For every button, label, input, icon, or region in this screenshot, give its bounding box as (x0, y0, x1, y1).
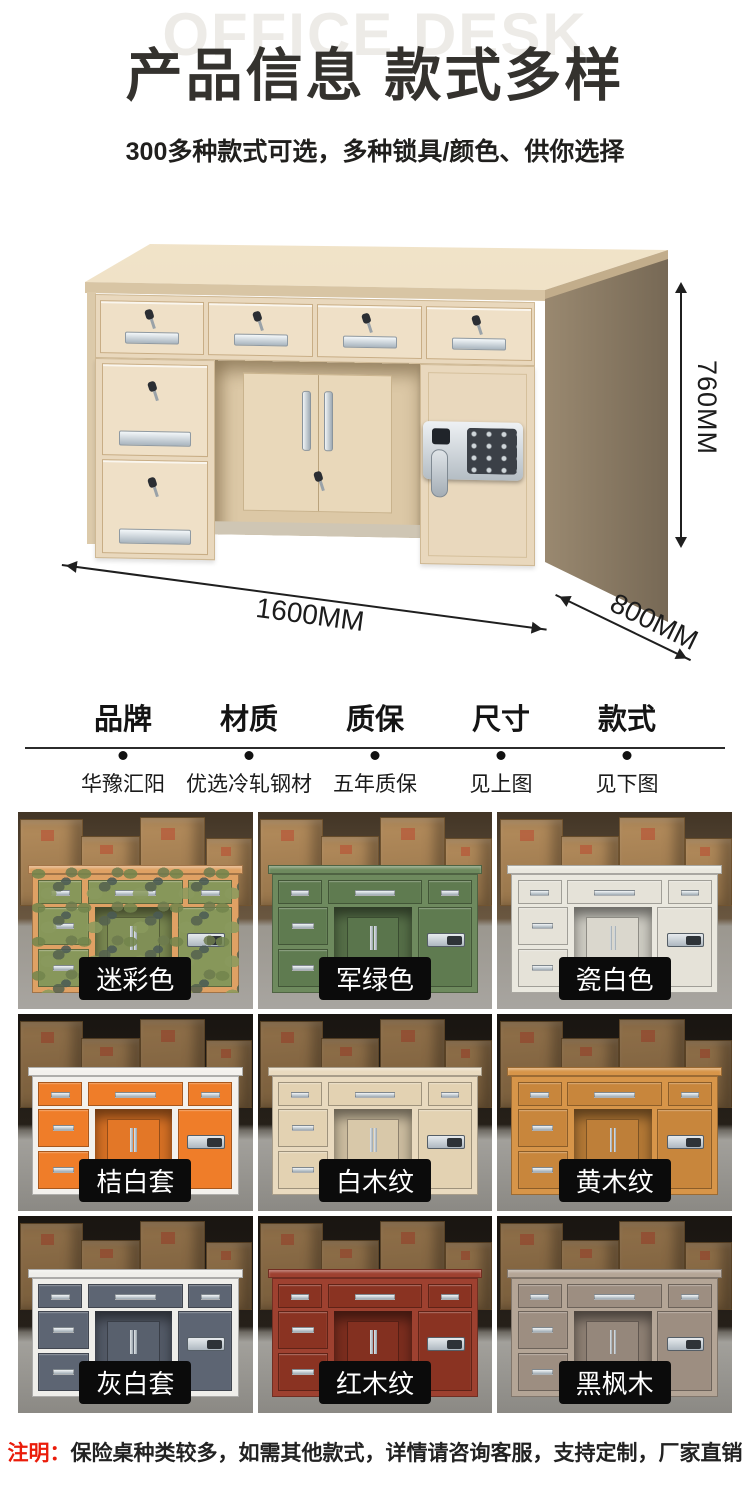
variant-label: 黑枫木 (559, 1361, 671, 1404)
spec-dot (623, 751, 632, 760)
key-icon (360, 312, 377, 335)
header-section: OFFICE DESK 产品信息 款式多样 300多种款式可选，多种锁具/颜色、… (0, 0, 750, 190)
variant-card-yellow-woodgrain: 黄木纹 (497, 1014, 732, 1211)
drawer-handle (119, 528, 191, 544)
desk-drawer (102, 459, 208, 555)
dimension-width-label: 1600MM (224, 588, 397, 642)
key-icon (146, 476, 163, 499)
desk-top-drawer-band (95, 294, 535, 366)
drawer-handle (125, 332, 179, 345)
variant-label: 灰白套 (79, 1361, 191, 1404)
key-icon (470, 314, 487, 337)
variant-label: 迷彩色 (79, 957, 191, 1000)
variant-card-porcelain-white: 瓷白色 (497, 812, 732, 1009)
spec-dot (371, 751, 380, 760)
spec-dot (119, 751, 128, 760)
desk-left-pedestal (95, 358, 215, 560)
desk-drawer (208, 302, 313, 357)
variant-label: 桔白套 (79, 1159, 191, 1202)
variant-label: 瓷白色 (559, 957, 671, 1000)
spec-dot (497, 751, 506, 760)
lock-lever-handle (431, 449, 448, 497)
variant-card-orange-white: 桔白套 (18, 1014, 253, 1211)
combo-lock-icon (187, 1135, 225, 1149)
spec-dot (245, 751, 254, 760)
variant-card-white-woodgrain: 白木纹 (258, 1014, 493, 1211)
page-subtitle: 300多种款式可选，多种锁具/颜色、供你选择 (0, 132, 750, 168)
combo-lock-icon (427, 933, 465, 947)
desk-knee-space (215, 360, 420, 538)
combo-lock-icon (667, 1337, 705, 1351)
combo-lock-icon (427, 1135, 465, 1149)
variant-label: 军绿色 (319, 957, 431, 1000)
hero-product-image: 1600MM 800MM 760MM (0, 190, 750, 690)
combo-lock-icon (187, 933, 225, 947)
variant-label: 黄木纹 (559, 1159, 671, 1202)
dimension-height-arrow (680, 286, 682, 544)
fingerprint-sensor-icon (432, 428, 450, 444)
variant-card-army-green: 军绿色 (258, 812, 493, 1009)
variant-card-camouflage: 迷彩色 (18, 812, 253, 1009)
page-title: 产品信息 款式多样 (0, 30, 750, 112)
door-handle (324, 391, 333, 451)
dimension-height-label: 760MM (691, 360, 722, 455)
desk-cabinet-doors (243, 373, 392, 514)
key-icon (146, 380, 163, 403)
combo-lock-icon (667, 933, 705, 947)
drawer-handle (119, 430, 191, 446)
desk-right-pedestal (420, 364, 535, 566)
desk-drawer (426, 306, 532, 361)
combo-lock-icon (667, 1135, 705, 1149)
desk-front (95, 294, 535, 568)
drawer-handle (343, 336, 397, 349)
desk-drawer (100, 300, 204, 355)
variant-card-black-maple: 黑枫木 (497, 1216, 732, 1413)
combo-lock-icon (427, 1337, 465, 1351)
spec-strip: 品牌 华豫汇阳 材质 优选冷轧钢材 质保 五年质保 尺寸 见上图 款式 见下图 (0, 690, 750, 800)
note-text: 保险桌种类较多，如需其他款式，详情请咨询客服，支持定制，厂家直销 (71, 1442, 743, 1465)
desk-drawer (317, 304, 422, 359)
spec-divider-line (25, 747, 725, 749)
desk-base-sill (215, 521, 420, 538)
desk-drawer (102, 363, 208, 457)
keypad-buttons (467, 428, 517, 475)
variant-card-gray-white: 灰白套 (18, 1216, 253, 1413)
key-icon (312, 470, 329, 493)
drawer-handle (452, 338, 506, 351)
drawer-handle (234, 334, 288, 347)
variant-grid: 迷彩色 军绿色 (18, 812, 732, 1413)
combo-lock-icon (187, 1337, 225, 1351)
spec-columns: 品牌 华豫汇阳 材质 优选冷轧钢材 质保 五年质保 尺寸 见上图 款式 见下图 (60, 690, 690, 798)
key-icon (143, 308, 160, 331)
variant-label: 白木纹 (319, 1159, 431, 1202)
variant-card-red-woodgrain: 红木纹 (258, 1216, 493, 1413)
door-handle (302, 391, 311, 451)
variant-label: 红木纹 (319, 1361, 431, 1404)
keypad-lock (423, 421, 523, 481)
note-prefix: 注明： (8, 1442, 71, 1465)
key-icon (251, 310, 268, 333)
footer-note: 注明：保险桌种类较多，如需其他款式，详情请咨询客服，支持定制，厂家直销 (0, 1437, 750, 1467)
